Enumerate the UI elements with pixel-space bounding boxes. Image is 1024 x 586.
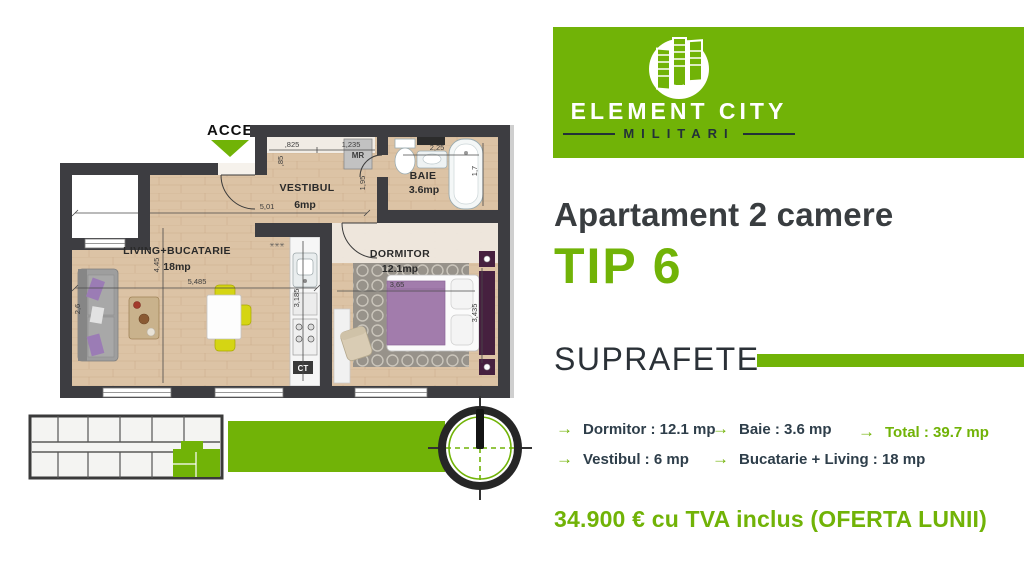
dim-bed-w: 3,65 (390, 280, 405, 289)
arrow-icon: → (712, 449, 729, 469)
surface-item-dormitor: → Dormitor : 12.1 mp (556, 419, 716, 439)
apartment-type: TIP 6 (554, 237, 683, 295)
building-plan (28, 412, 228, 484)
room-area-living: 18mp (163, 261, 190, 273)
coffee-table (129, 297, 159, 339)
toilet (395, 139, 415, 174)
price-text: 34.900 € cu TVA inclus (OFERTA LUNII) (554, 506, 987, 533)
dim-closet-w1: ,825 (285, 140, 300, 149)
flyer: ACCES (0, 0, 1024, 586)
arrow-icon: → (556, 419, 573, 439)
surface-item-label: Dormitor : 12.1 mp (583, 421, 716, 438)
surface-item-label: Total : 39.7 mp (885, 424, 989, 441)
dim-living-w: 5,485 (188, 277, 207, 286)
arrow-icon: → (556, 449, 573, 469)
room-area-dormitor: 12.1mp (382, 263, 418, 275)
terrace (72, 175, 138, 238)
room-area-vestibul: 6mp (294, 199, 316, 211)
page-title: Apartament 2 camere (554, 196, 893, 234)
radiator-icon: ✳✳✳ (269, 242, 284, 249)
divider (743, 133, 795, 135)
dim-bath-w: 2,25 (430, 143, 445, 152)
surface-item-vestibul: → Vestibul : 6 mp (556, 449, 689, 469)
surfaces-heading: SUPRAFETE (554, 341, 760, 378)
room-label-baie: BAIE (410, 170, 437, 182)
dim-living-side: 2,6 (73, 304, 82, 314)
brand-banner: ELEMENT CITY MILITARI (553, 27, 1024, 158)
floor-plan: CT (55, 113, 515, 405)
surface-item-total: → Total : 39.7 mp (858, 422, 989, 442)
kitchen-counter: CT (290, 237, 320, 386)
dim-closet-d: ,85 (276, 156, 285, 166)
heading-accent-bar (757, 354, 1024, 367)
dim-closet-w2: 1,235 (342, 140, 361, 149)
room-label-vestibul: VESTIBUL (279, 182, 334, 194)
arrow-icon: → (712, 419, 729, 439)
brand-location: MILITARI (623, 126, 734, 141)
compass-needle (476, 409, 484, 449)
dim-tub-l: 1,7 (470, 166, 479, 176)
arrow-icon: → (858, 422, 875, 442)
dim-living-h: 4,45 (152, 258, 161, 273)
surface-item-label: Bucatarie + Living : 18 mp (739, 451, 925, 468)
building-icon (634, 33, 724, 99)
surface-item-label: Baie : 3.6 mp (739, 421, 832, 438)
sofa (78, 269, 118, 361)
dim-kitchen-h: 3,185 (292, 289, 301, 308)
green-band (228, 421, 445, 472)
compass-icon (428, 396, 532, 500)
dim-hall-w: 5,01 (260, 202, 275, 211)
room-area-baie: 3.6mp (409, 184, 439, 196)
dim-dorm-h: 3,435 (470, 304, 479, 323)
dim-hall-h: 1,95 (358, 176, 367, 191)
brand-name: ELEMENT CITY (553, 98, 805, 125)
surface-item-bucatarie-living: → Bucatarie + Living : 18 mp (712, 449, 925, 469)
washer-label: MR (352, 151, 365, 160)
surface-item-label: Vestibul : 6 mp (583, 451, 689, 468)
bath-sink (417, 151, 447, 168)
divider (563, 133, 615, 135)
brand-location-row: MILITARI (553, 126, 805, 141)
surface-item-baie: → Baie : 3.6 mp (712, 419, 832, 439)
room-label-dormitor: DORMITOR (370, 248, 430, 260)
room-label-living: LIVING+BUCATARIE (123, 245, 231, 257)
